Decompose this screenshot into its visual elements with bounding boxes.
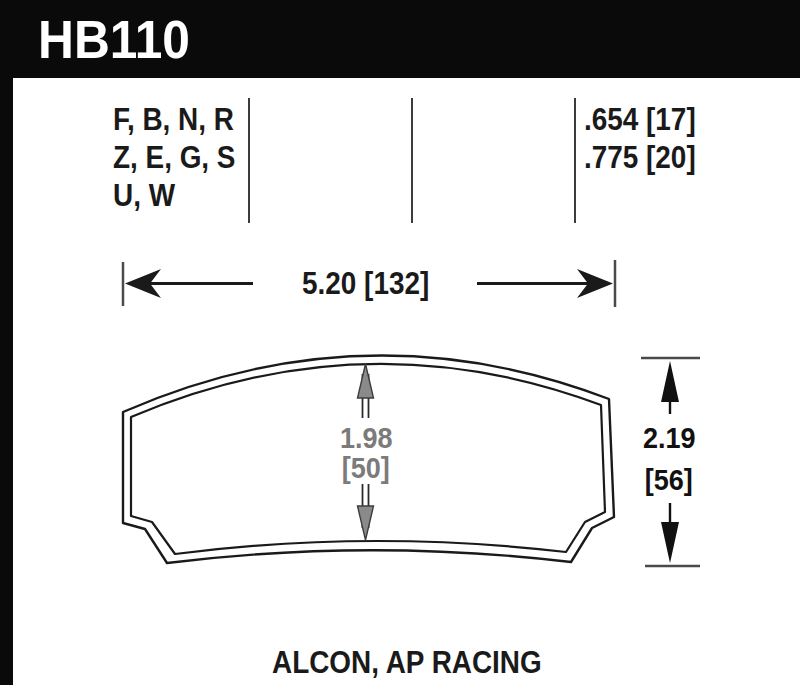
height-dim-down-arrowhead bbox=[661, 522, 679, 563]
center-dimension-inches: 1.98 bbox=[316, 421, 416, 455]
height-dimension-inches: 2.19 bbox=[619, 421, 719, 455]
pad-technical-drawing bbox=[0, 0, 800, 691]
center-dim-up-arrowhead bbox=[358, 364, 374, 398]
width-dimension-label: 5.20 [132] bbox=[256, 266, 476, 302]
spec-sheet-page: HB110 F, B, N, R Z, E, G, S U, W .654 [1… bbox=[0, 0, 800, 691]
height-dimension-mm: [56] bbox=[619, 463, 719, 497]
height-dimension bbox=[641, 358, 700, 566]
center-dim-down-arrowhead bbox=[358, 506, 374, 540]
height-dim-up-arrowhead bbox=[661, 361, 679, 402]
applications-label: ALCON, AP RACING bbox=[13, 645, 800, 681]
center-dimension-mm: [50] bbox=[316, 451, 416, 485]
